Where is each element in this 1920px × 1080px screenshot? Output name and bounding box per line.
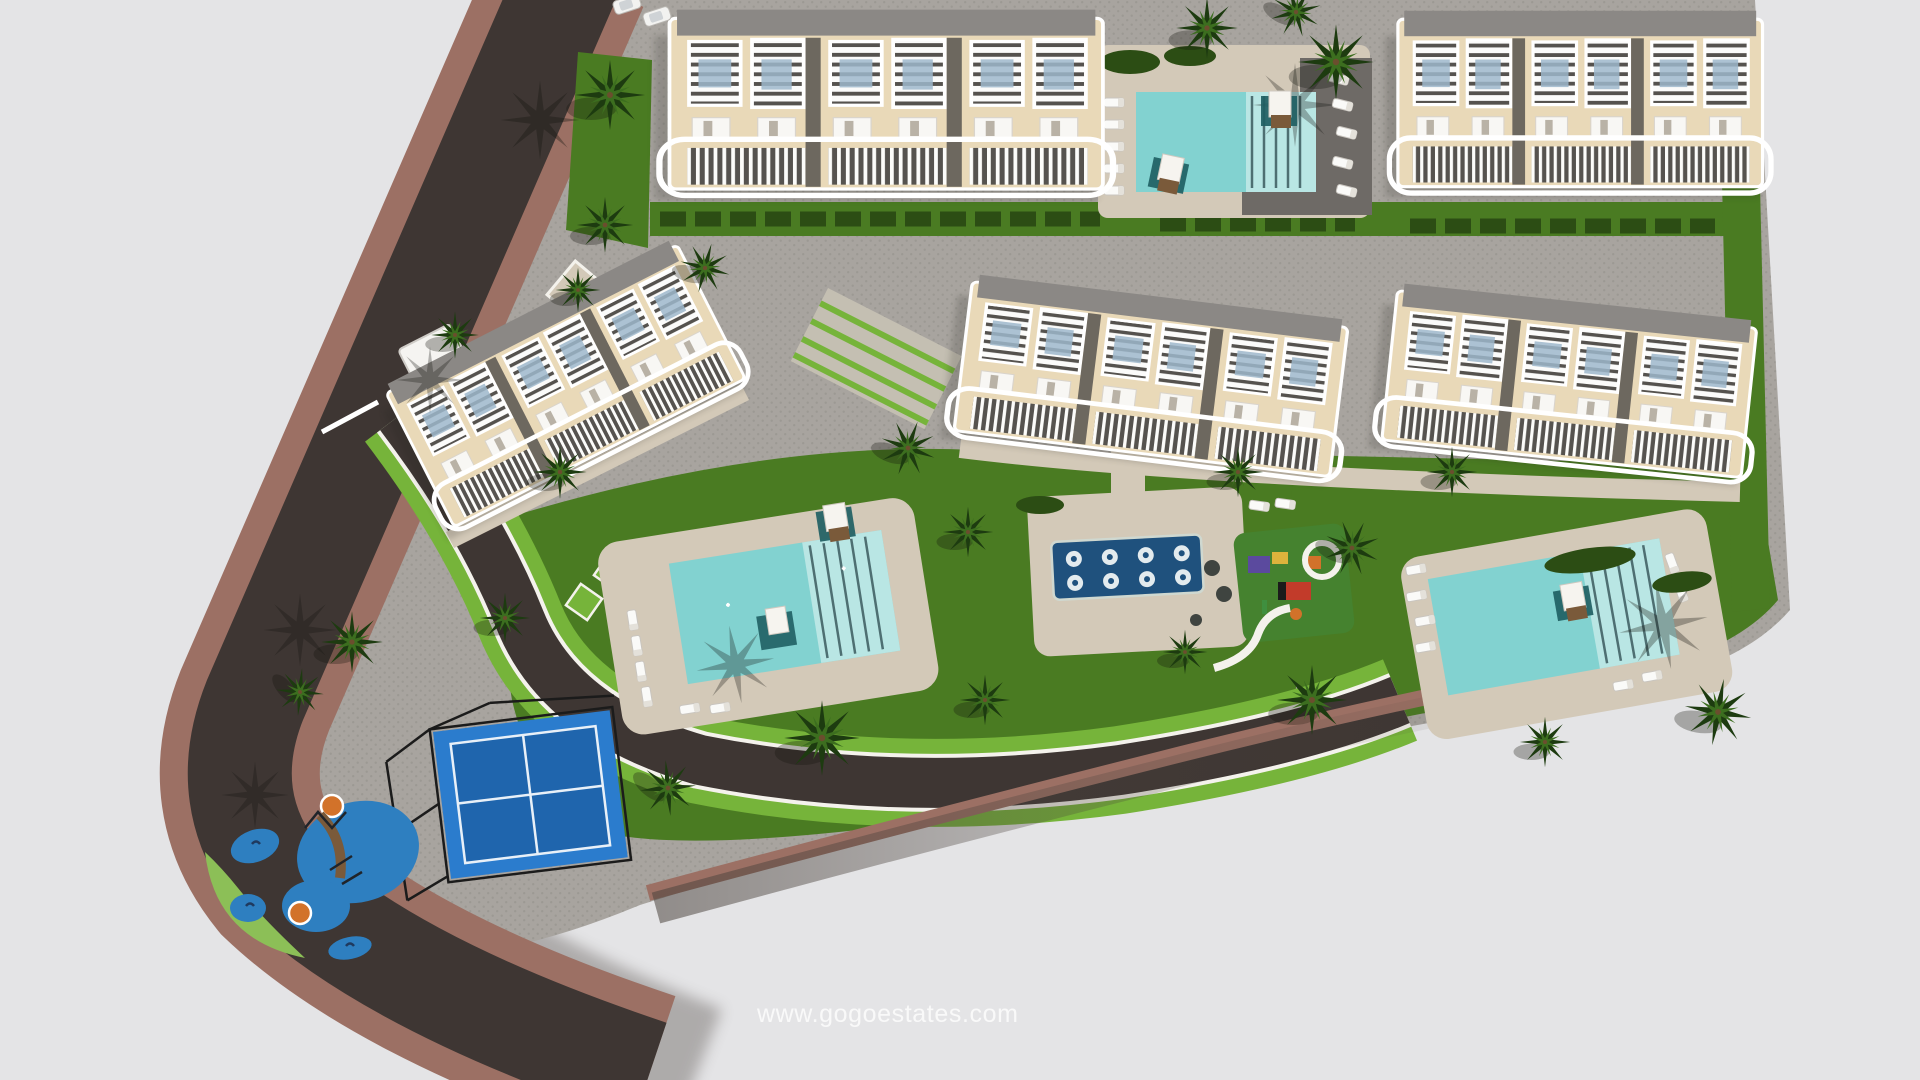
site-plan-render: www.gogoestates.com — [0, 0, 1920, 1080]
spa-plaza — [1027, 486, 1250, 657]
splash-pad — [230, 894, 266, 922]
scene-svg — [0, 0, 1920, 1080]
play-equipment — [1248, 556, 1270, 573]
play-slide — [1284, 582, 1311, 600]
parasol-table — [1204, 560, 1220, 576]
watermark: www.gogoestates.com — [757, 1000, 1019, 1029]
building-north-east — [1385, 11, 1771, 198]
play-equipment — [1272, 552, 1288, 564]
building-north-west — [654, 10, 1113, 200]
parasol-table — [1216, 586, 1232, 602]
parasol-table — [1190, 614, 1202, 626]
play-tower — [1308, 556, 1321, 569]
play-circle — [289, 902, 311, 924]
